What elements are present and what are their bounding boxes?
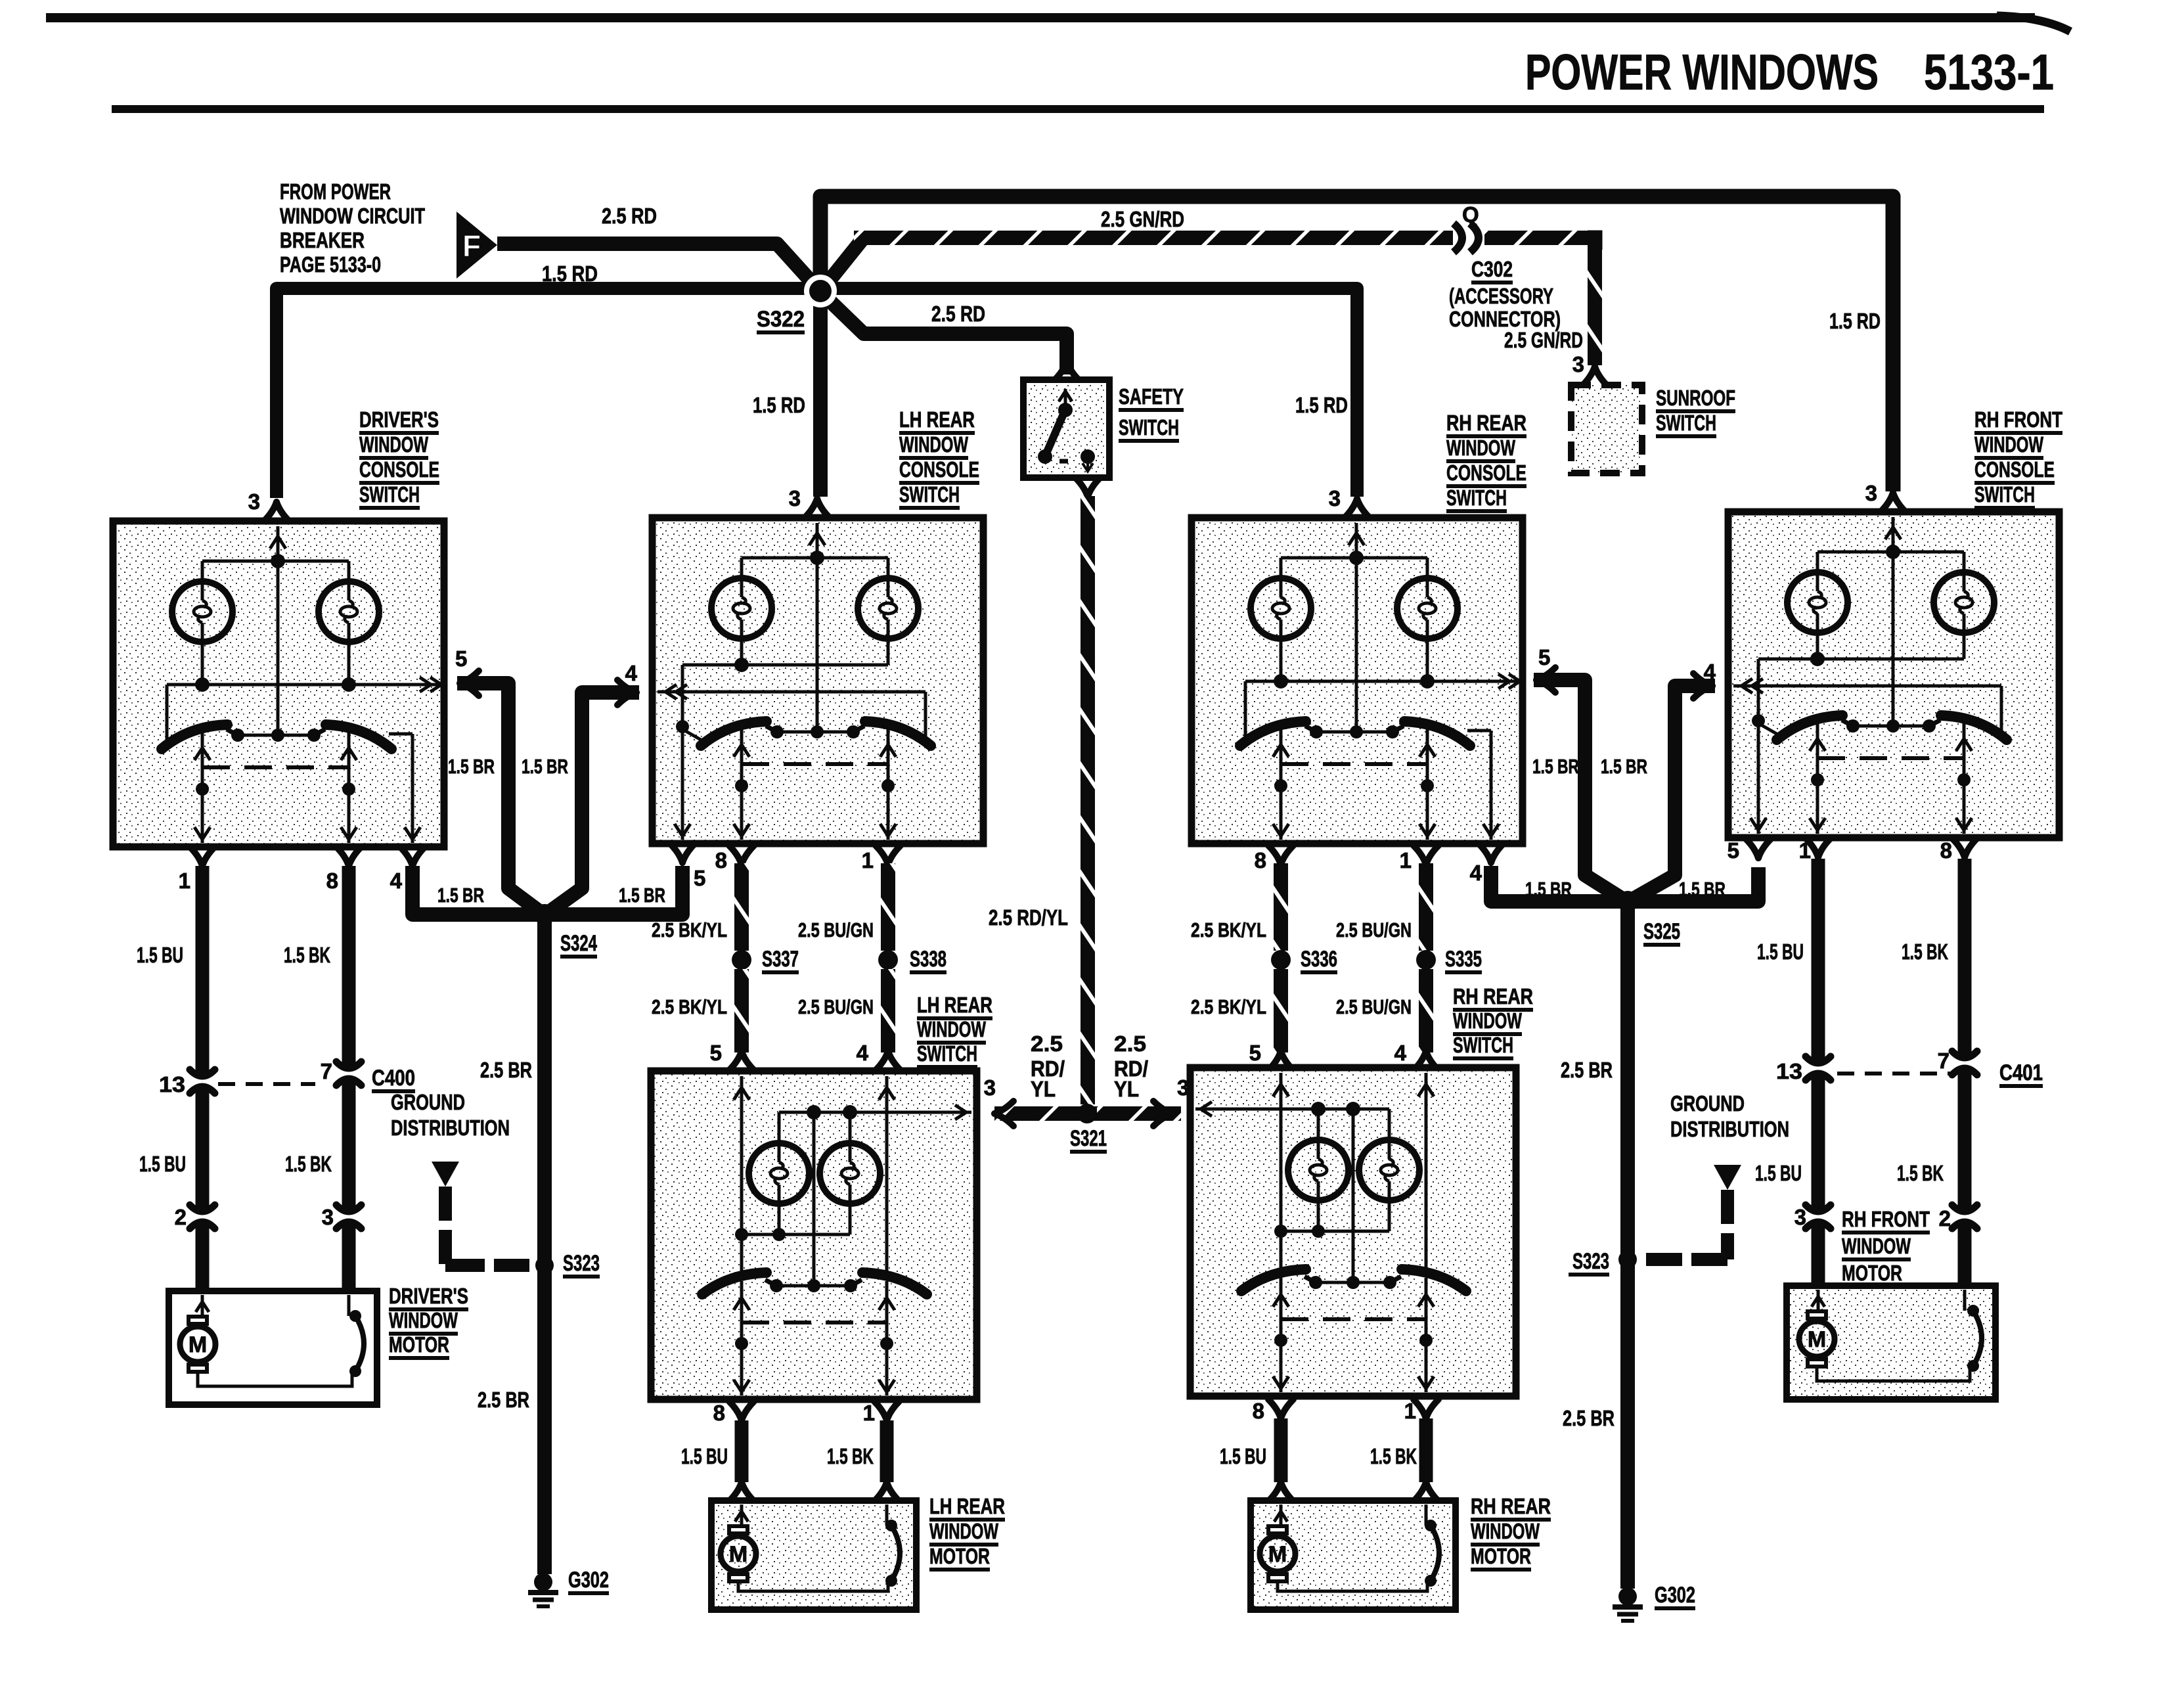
svg-text:(ACCESSORY: (ACCESSORY xyxy=(1449,284,1553,308)
svg-text:MOTOR: MOTOR xyxy=(1842,1261,1902,1285)
svg-text:5: 5 xyxy=(1249,1041,1261,1065)
svg-text:4: 4 xyxy=(625,661,638,685)
svg-text:1.5 BR: 1.5 BR xyxy=(1525,878,1572,901)
svg-text:RH FRONT: RH FRONT xyxy=(1974,407,2062,432)
svg-text:SWITCH: SWITCH xyxy=(1446,486,1507,510)
svg-text:C401: C401 xyxy=(1999,1060,2043,1085)
svg-text:2.5 GN/RD: 2.5 GN/RD xyxy=(1101,207,1184,231)
svg-text:SWITCH: SWITCH xyxy=(917,1041,977,1066)
svg-text:13: 13 xyxy=(1776,1059,1802,1083)
svg-text:2.5 BK/YL: 2.5 BK/YL xyxy=(652,995,727,1018)
svg-text:3: 3 xyxy=(984,1075,996,1100)
svg-text:8: 8 xyxy=(1253,1399,1264,1423)
svg-text:G302: G302 xyxy=(568,1568,609,1593)
svg-text:2.5 BR: 2.5 BR xyxy=(478,1388,529,1412)
svg-text:2: 2 xyxy=(1939,1206,1951,1231)
svg-text:WINDOW: WINDOW xyxy=(929,1519,999,1543)
svg-text:MOTOR: MOTOR xyxy=(929,1544,990,1568)
svg-text:1.5 BK: 1.5 BK xyxy=(1902,939,1948,964)
svg-text:2.5 RD: 2.5 RD xyxy=(602,204,657,228)
svg-text:RH REAR: RH REAR xyxy=(1471,1494,1551,1518)
svg-text:3: 3 xyxy=(1329,486,1341,510)
svg-text:1.5 BR: 1.5 BR xyxy=(619,884,665,907)
svg-text:S323: S323 xyxy=(563,1251,600,1276)
svg-text:1: 1 xyxy=(862,848,874,872)
svg-text:WINDOW: WINDOW xyxy=(917,1017,987,1041)
svg-text:1.5 BK: 1.5 BK xyxy=(1370,1444,1417,1468)
svg-text:3: 3 xyxy=(1572,352,1584,376)
svg-text:5: 5 xyxy=(694,866,705,890)
svg-text:5: 5 xyxy=(455,646,467,671)
svg-text:SWITCH: SWITCH xyxy=(1119,415,1179,440)
svg-text:G302: G302 xyxy=(1655,1583,1695,1608)
svg-text:SAFETY: SAFETY xyxy=(1119,384,1184,409)
svg-text:5: 5 xyxy=(1538,645,1550,669)
svg-text:CONSOLE: CONSOLE xyxy=(1974,457,2055,482)
svg-text:RH REAR: RH REAR xyxy=(1446,411,1527,435)
svg-text:1.5 BU: 1.5 BU xyxy=(1757,939,1804,964)
svg-text:1.5 BK: 1.5 BK xyxy=(284,943,330,967)
svg-text:2.5 GN/RD: 2.5 GN/RD xyxy=(1504,328,1583,352)
svg-text:M: M xyxy=(1808,1327,1826,1352)
svg-text:1.5 BU: 1.5 BU xyxy=(1755,1161,1802,1185)
svg-text:8: 8 xyxy=(326,869,338,893)
svg-text:S321: S321 xyxy=(1070,1126,1107,1151)
svg-text:4: 4 xyxy=(1470,861,1482,885)
svg-text:1.5 BU: 1.5 BU xyxy=(139,1152,186,1176)
svg-text:PAGE 5133-0: PAGE 5133-0 xyxy=(280,252,381,277)
svg-text:1.5 BK: 1.5 BK xyxy=(1897,1161,1944,1185)
svg-text:FROM POWER: FROM POWER xyxy=(280,179,391,204)
svg-text:1.5 RD: 1.5 RD xyxy=(1295,393,1348,417)
svg-text:1.5 BU: 1.5 BU xyxy=(681,1444,728,1468)
svg-text:GROUND: GROUND xyxy=(1670,1091,1745,1116)
svg-text:M: M xyxy=(729,1542,747,1567)
svg-text:1.5 BR: 1.5 BR xyxy=(522,755,568,778)
svg-text:WINDOW: WINDOW xyxy=(389,1308,458,1332)
svg-text:2.5 BR: 2.5 BR xyxy=(1561,1058,1613,1082)
svg-text:3: 3 xyxy=(1865,481,1877,505)
svg-text:2.5: 2.5 xyxy=(1114,1031,1146,1056)
svg-text:SWITCH: SWITCH xyxy=(1974,482,2035,507)
svg-text:M: M xyxy=(1268,1542,1287,1567)
svg-text:3: 3 xyxy=(789,486,801,510)
svg-text:DRIVER'S: DRIVER'S xyxy=(359,407,439,432)
svg-text:S322: S322 xyxy=(757,307,805,332)
svg-text:WINDOW: WINDOW xyxy=(1842,1234,1911,1258)
svg-text:LH REAR: LH REAR xyxy=(899,407,975,432)
svg-text:SWITCH: SWITCH xyxy=(359,482,420,507)
svg-text:1.5 RD: 1.5 RD xyxy=(753,393,805,417)
svg-text:WINDOW: WINDOW xyxy=(359,432,429,457)
svg-text:SWITCH: SWITCH xyxy=(899,482,960,507)
svg-text:CONSOLE: CONSOLE xyxy=(1446,461,1527,485)
svg-text:1.5 BU: 1.5 BU xyxy=(137,943,183,967)
svg-text:8: 8 xyxy=(1255,848,1266,872)
svg-text:2.5 BK/YL: 2.5 BK/YL xyxy=(1191,918,1266,941)
svg-text:SWITCH: SWITCH xyxy=(1656,411,1716,435)
svg-text:5: 5 xyxy=(1727,838,1739,863)
svg-text:S336: S336 xyxy=(1301,947,1337,972)
svg-text:1: 1 xyxy=(1400,848,1412,872)
svg-text:1.5 BR: 1.5 BR xyxy=(1532,755,1579,778)
svg-text:1.5 RD: 1.5 RD xyxy=(1829,309,1881,333)
svg-text:POWER WINDOWS: POWER WINDOWS xyxy=(1525,45,1879,101)
svg-text:8: 8 xyxy=(715,848,727,872)
svg-text:WINDOW: WINDOW xyxy=(1453,1008,1523,1033)
svg-text:F: F xyxy=(462,229,481,263)
svg-text:WINDOW: WINDOW xyxy=(899,432,969,457)
svg-text:DISTRIBUTION: DISTRIBUTION xyxy=(1670,1117,1789,1141)
svg-text:WINDOW: WINDOW xyxy=(1446,436,1516,460)
svg-text:S335: S335 xyxy=(1445,947,1482,972)
svg-text:2.5 BU/GN: 2.5 BU/GN xyxy=(798,918,874,941)
svg-text:5: 5 xyxy=(710,1041,722,1065)
svg-text:4: 4 xyxy=(857,1041,869,1065)
svg-text:7: 7 xyxy=(1938,1049,1950,1073)
svg-text:MOTOR: MOTOR xyxy=(1471,1544,1531,1568)
svg-text:8: 8 xyxy=(1940,838,1952,863)
svg-text:M: M xyxy=(189,1332,207,1357)
svg-text:4: 4 xyxy=(1704,660,1716,684)
svg-text:Q: Q xyxy=(1462,202,1479,227)
svg-text:CONSOLE: CONSOLE xyxy=(359,457,439,482)
svg-text:1.5 BR: 1.5 BR xyxy=(1601,755,1647,778)
svg-text:DRIVER'S: DRIVER'S xyxy=(389,1284,468,1308)
svg-text:1.5 BK: 1.5 BK xyxy=(285,1152,332,1176)
svg-text:2.5 BK/YL: 2.5 BK/YL xyxy=(652,918,727,941)
svg-text:1.5 BR: 1.5 BR xyxy=(437,884,484,907)
svg-text:C302: C302 xyxy=(1471,257,1513,281)
svg-text:7: 7 xyxy=(321,1059,332,1083)
svg-text:S324: S324 xyxy=(560,931,597,956)
svg-text:SUNROOF: SUNROOF xyxy=(1656,386,1735,410)
svg-text:2.5 BU/GN: 2.5 BU/GN xyxy=(798,995,874,1018)
svg-text:1: 1 xyxy=(1799,838,1811,863)
svg-text:C400: C400 xyxy=(372,1066,415,1091)
svg-text:3: 3 xyxy=(248,489,260,514)
svg-text:SWITCH: SWITCH xyxy=(1453,1033,1513,1057)
svg-text:2.5 RD/YL: 2.5 RD/YL xyxy=(989,905,1068,930)
svg-text:MOTOR: MOTOR xyxy=(389,1332,449,1357)
svg-text:1: 1 xyxy=(863,1401,875,1425)
svg-text:WINDOW: WINDOW xyxy=(1974,432,2044,457)
svg-text:4: 4 xyxy=(390,869,403,893)
svg-text:S337: S337 xyxy=(762,947,799,972)
svg-text:1.5 RD: 1.5 RD xyxy=(542,261,598,286)
svg-text:2.5 BK/YL: 2.5 BK/YL xyxy=(1191,995,1266,1018)
svg-text:2: 2 xyxy=(175,1205,187,1229)
svg-text:1.5 BR: 1.5 BR xyxy=(1679,878,1726,901)
svg-text:RH FRONT: RH FRONT xyxy=(1842,1207,1930,1231)
svg-text:YL: YL xyxy=(1114,1077,1139,1101)
svg-text:1.5 BU: 1.5 BU xyxy=(1220,1444,1266,1468)
svg-text:LH REAR: LH REAR xyxy=(917,993,992,1017)
svg-text:1.5 BR: 1.5 BR xyxy=(448,755,495,778)
svg-text:WINDOW CIRCUIT: WINDOW CIRCUIT xyxy=(280,204,425,228)
svg-text:1.5 BK: 1.5 BK xyxy=(827,1444,874,1468)
svg-text:BREAKER: BREAKER xyxy=(280,228,365,252)
svg-text:S323: S323 xyxy=(1572,1249,1609,1274)
svg-text:CONSOLE: CONSOLE xyxy=(899,457,979,482)
svg-text:S325: S325 xyxy=(1643,919,1680,944)
svg-text:5133-1: 5133-1 xyxy=(1924,45,2054,101)
svg-text:2.5 BR: 2.5 BR xyxy=(1563,1406,1615,1430)
svg-text:2.5: 2.5 xyxy=(1031,1031,1063,1056)
svg-text:1: 1 xyxy=(179,869,190,893)
svg-text:13: 13 xyxy=(159,1072,185,1097)
svg-text:3: 3 xyxy=(322,1205,334,1229)
svg-text:1: 1 xyxy=(1404,1399,1416,1423)
svg-text:GROUND: GROUND xyxy=(391,1090,465,1114)
svg-text:S338: S338 xyxy=(910,947,947,972)
svg-text:2.5 BU/GN: 2.5 BU/GN xyxy=(1336,918,1412,941)
svg-text:2.5 BU/GN: 2.5 BU/GN xyxy=(1336,995,1412,1018)
svg-text:RH REAR: RH REAR xyxy=(1453,984,1533,1008)
svg-text:DISTRIBUTION: DISTRIBUTION xyxy=(391,1116,510,1140)
svg-text:WINDOW: WINDOW xyxy=(1471,1519,1540,1543)
svg-text:2.5 RD: 2.5 RD xyxy=(931,302,985,326)
svg-text:3: 3 xyxy=(1794,1205,1806,1229)
svg-text:LH REAR: LH REAR xyxy=(929,1494,1005,1518)
svg-text:YL: YL xyxy=(1031,1077,1056,1101)
svg-text:2.5 BR: 2.5 BR xyxy=(480,1058,532,1082)
svg-text:8: 8 xyxy=(713,1401,725,1425)
svg-text:4: 4 xyxy=(1394,1041,1407,1065)
